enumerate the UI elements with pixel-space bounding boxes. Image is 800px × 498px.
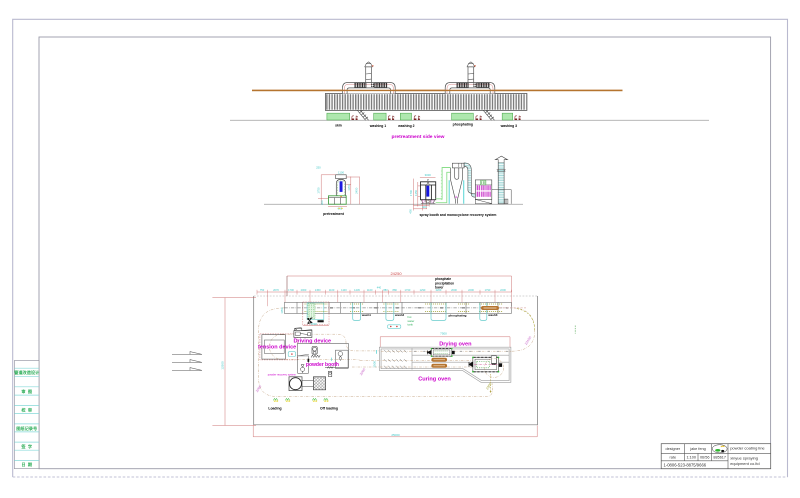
svg-text:designer: designer	[666, 447, 681, 451]
svg-text:1790: 1790	[485, 288, 491, 292]
svg-text:管道改造设计: 管道改造设计	[14, 369, 40, 376]
svg-text:1445: 1445	[354, 288, 360, 292]
svg-text:washing 3: washing 3	[500, 124, 518, 128]
svg-text:1100: 1100	[329, 288, 335, 292]
svg-text:jake feng: jake feng	[689, 447, 705, 451]
svg-text:日 期: 日 期	[21, 461, 32, 468]
svg-text:1700: 1700	[409, 189, 413, 196]
svg-text:1:100: 1:100	[686, 456, 696, 460]
svg-text:equipment co.ltd: equipment co.ltd	[730, 461, 759, 466]
svg-text:powder recovery system: powder recovery system	[268, 372, 296, 376]
svg-text:Loading: Loading	[268, 406, 281, 410]
svg-text:1730: 1730	[405, 288, 411, 292]
svg-text:pretreatment: pretreatment	[323, 212, 345, 216]
svg-text:1350: 1350	[414, 189, 418, 196]
svg-text:校 审: 校 审	[21, 407, 32, 414]
svg-text:1350: 1350	[347, 184, 351, 191]
svg-text:Off loading: Off loading	[320, 406, 338, 410]
svg-text:250: 250	[316, 166, 321, 170]
svg-text:签 字: 签 字	[20, 443, 32, 450]
svg-text:2200: 2200	[468, 288, 474, 292]
svg-text:tank: tank	[408, 323, 414, 327]
svg-text:23150: 23150	[524, 336, 532, 346]
svg-text:tension device: tension device	[258, 345, 296, 351]
svg-text:880: 880	[383, 288, 388, 292]
svg-text:powder coating line: powder coating line	[730, 446, 765, 451]
svg-text:12500: 12500	[221, 361, 225, 370]
svg-text:1100: 1100	[341, 288, 347, 292]
svg-text:880: 880	[393, 288, 398, 292]
svg-text:2000: 2000	[359, 368, 366, 377]
svg-text:图纸记录号: 图纸记录号	[16, 425, 37, 432]
svg-text:1100: 1100	[338, 171, 344, 175]
svg-text:powder booth: powder booth	[306, 362, 339, 368]
svg-text:1050: 1050	[280, 307, 284, 314]
svg-text:xinyue spraying: xinyue spraying	[730, 455, 758, 460]
svg-text:3000: 3000	[425, 173, 432, 177]
svg-text:wash1: wash1	[361, 313, 372, 317]
svg-text:spray booth and monocyclone re: spray booth and monocyclone recovery sys…	[420, 213, 497, 217]
svg-text:1450: 1450	[315, 288, 321, 292]
svg-text:2000: 2000	[301, 288, 307, 292]
svg-text:1-0806-523-8875/9666: 1-0806-523-8875/9666	[664, 462, 707, 467]
svg-text:400: 400	[422, 205, 427, 209]
svg-text:885617: 885617	[713, 456, 726, 460]
svg-text:wash3: wash3	[487, 313, 498, 317]
svg-text:25000: 25000	[391, 433, 400, 437]
svg-text:Curing oven: Curing oven	[418, 377, 451, 383]
svg-text:phosphating: phosphating	[449, 313, 467, 317]
svg-text:rate: rate	[670, 456, 677, 460]
svg-text:1700: 1700	[288, 288, 294, 292]
svg-text:1750: 1750	[317, 187, 321, 194]
svg-text:审 图: 审 图	[21, 388, 32, 395]
svg-text:washing 1: washing 1	[369, 124, 387, 128]
svg-text:tower: tower	[435, 286, 444, 290]
svg-text:750: 750	[260, 288, 265, 292]
svg-text:pretreatment side view: pretreatment side view	[391, 134, 444, 140]
svg-text:600: 600	[320, 200, 324, 205]
svg-text:phosphating: phosphating	[453, 123, 473, 127]
svg-text:2070: 2070	[273, 288, 279, 292]
svg-text:washing 2: washing 2	[397, 124, 415, 128]
svg-text:1100: 1100	[367, 288, 373, 292]
svg-text:1500: 1500	[311, 322, 318, 326]
svg-text:440: 440	[377, 285, 382, 289]
svg-text:06/56: 06/56	[700, 456, 710, 460]
svg-text:7500: 7500	[440, 331, 447, 335]
svg-text:2450: 2450	[355, 187, 359, 194]
svg-text:24250: 24250	[390, 271, 402, 276]
svg-text:2000: 2000	[255, 384, 262, 393]
svg-text:1500: 1500	[372, 361, 376, 368]
svg-text:2350: 2350	[485, 382, 492, 391]
svg-text:2200: 2200	[500, 288, 506, 292]
svg-text:450: 450	[408, 209, 412, 214]
svg-text:Drying oven: Drying oven	[439, 341, 472, 347]
svg-text:1290: 1290	[420, 288, 426, 292]
svg-text:skin: skin	[335, 124, 342, 128]
svg-text:wash2: wash2	[394, 313, 405, 317]
svg-text:2000: 2000	[451, 288, 457, 292]
